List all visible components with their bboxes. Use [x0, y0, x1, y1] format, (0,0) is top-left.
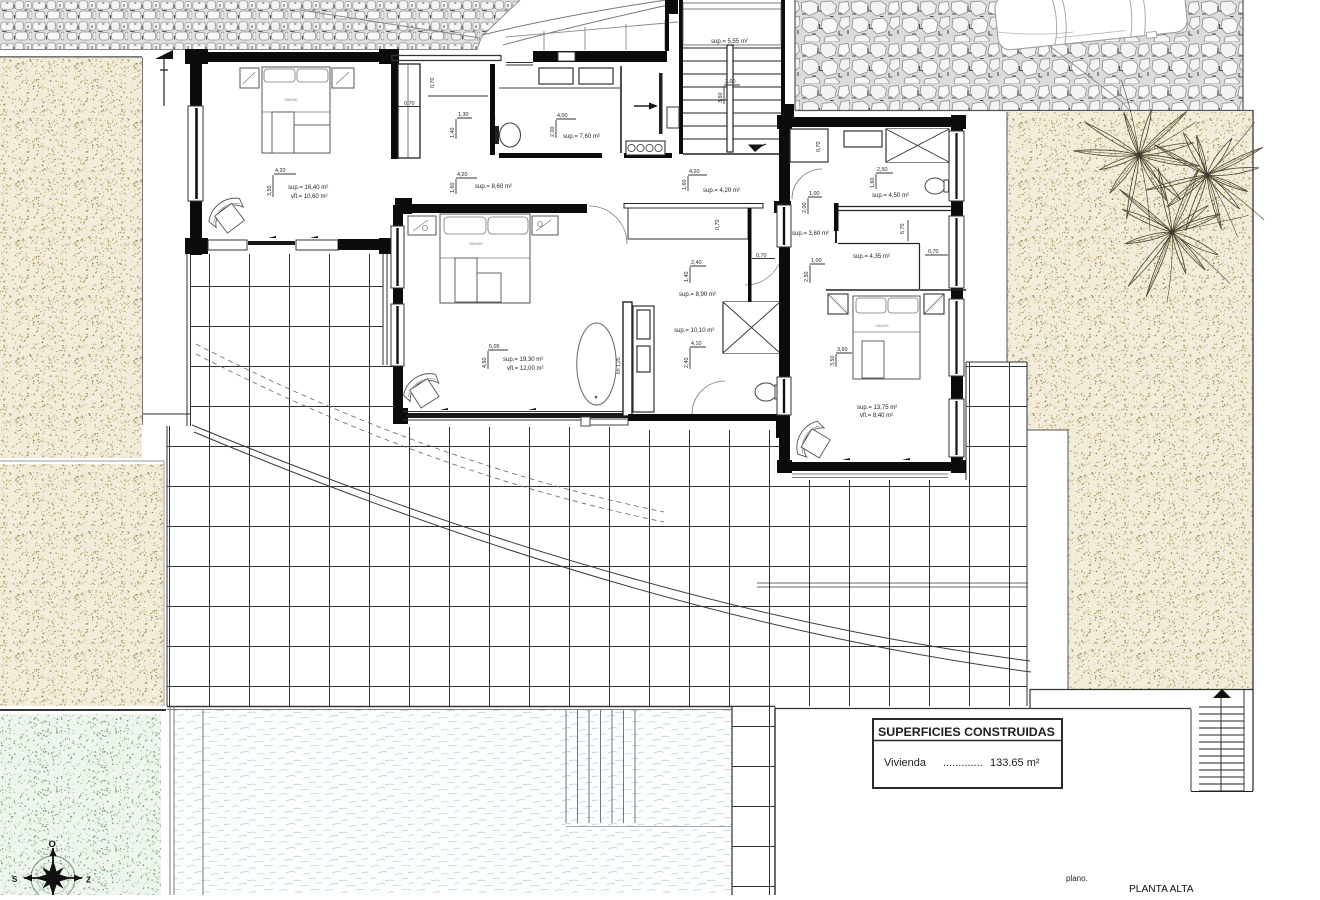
svg-text:2,50: 2,50	[877, 167, 888, 173]
svg-text:sup.= 16,40 m²: sup.= 16,40 m²	[288, 185, 328, 191]
svg-text:vfl.= 10,60 m²: vfl.= 10,60 m²	[291, 194, 328, 200]
svg-text:sup.= 4,50 m²: sup.= 4,50 m²	[872, 193, 909, 199]
svg-text:0,70: 0,70	[928, 249, 939, 255]
svg-text:sup.= 8,60 m²: sup.= 8,60 m²	[475, 184, 512, 190]
svg-text:133.65 m²: 133.65 m²	[990, 757, 1040, 769]
svg-text:vfl.= 8,40 m²: vfl.= 8,40 m²	[860, 413, 893, 419]
svg-text:3,60: 3,60	[837, 347, 848, 353]
svg-text:sup.= 13,75 m²: sup.= 13,75 m²	[857, 405, 897, 411]
svg-text:sup.= 19,30 m²: sup.= 19,30 m²	[503, 357, 543, 363]
svg-text:1,00: 1,00	[809, 191, 820, 197]
svg-text:.............: .............	[943, 757, 983, 769]
svg-text:1,30: 1,30	[458, 112, 469, 118]
svg-text:sup.= 5,55 m²: sup.= 5,55 m²	[711, 39, 748, 45]
svg-text:5,05: 5,05	[489, 344, 500, 350]
svg-text:2,00: 2,00	[802, 203, 808, 214]
svg-text:Z: Z	[86, 876, 91, 885]
svg-text:0,70: 0,70	[715, 220, 721, 231]
svg-text:tm 1,25: tm 1,25	[616, 357, 622, 374]
svg-text:1,00: 1,00	[811, 258, 822, 264]
svg-text:150x190: 150x190	[469, 242, 482, 246]
svg-text:2,40: 2,40	[691, 260, 702, 266]
svg-text:S: S	[12, 875, 18, 884]
svg-text:O: O	[49, 839, 56, 850]
svg-text:3,50: 3,50	[267, 186, 273, 197]
svg-text:1,60: 1,60	[450, 183, 456, 194]
svg-text:2,40: 2,40	[684, 358, 690, 369]
svg-text:4,20: 4,20	[275, 168, 286, 174]
svg-text:vfl.= 12,00 m²: vfl.= 12,00 m²	[507, 366, 544, 372]
svg-text:plano.: plano.	[1066, 874, 1088, 883]
svg-text:Vivienda: Vivienda	[884, 757, 927, 769]
svg-text:4,10: 4,10	[691, 341, 702, 347]
svg-text:sup.= 8,90 m²: sup.= 8,90 m²	[679, 292, 716, 298]
svg-text:4,50: 4,50	[482, 358, 488, 369]
svg-text:1,60: 1,60	[870, 178, 876, 189]
svg-text:4,00: 4,00	[557, 113, 568, 119]
svg-text:sup.= 3,60 m²: sup.= 3,60 m²	[792, 231, 829, 237]
svg-text:1,40: 1,40	[450, 128, 456, 139]
svg-text:1,60: 1,60	[682, 180, 688, 191]
svg-text:2,50: 2,50	[804, 272, 810, 283]
svg-text:SUPERFICIES CONSTRUIDAS: SUPERFICIES CONSTRUIDAS	[878, 725, 1055, 739]
svg-text:150x190: 150x190	[284, 98, 297, 102]
svg-text:PLANTA ALTA: PLANTA ALTA	[1129, 884, 1194, 895]
svg-text:6,70: 6,70	[900, 224, 906, 235]
svg-text:3,50: 3,50	[830, 356, 836, 367]
svg-text:sup.= 10,10 m²: sup.= 10,10 m²	[674, 328, 714, 334]
svg-text:140x190: 140x190	[875, 324, 888, 328]
svg-text:0,70: 0,70	[816, 142, 822, 153]
svg-text:0,70: 0,70	[430, 78, 436, 89]
svg-text:sup.= 7,60 m²: sup.= 7,60 m²	[563, 134, 600, 140]
svg-text:3,60: 3,60	[718, 93, 724, 104]
svg-text:4,20: 4,20	[457, 172, 468, 178]
svg-text:4,20: 4,20	[689, 169, 700, 175]
svg-text:sup.= 4,35 m²: sup.= 4,35 m²	[853, 254, 890, 260]
svg-text:2,00: 2,00	[550, 127, 556, 138]
svg-text:2,00: 2,00	[725, 79, 736, 85]
svg-text:1,40: 1,40	[684, 272, 690, 283]
svg-text:sup.= 4,20 m²: sup.= 4,20 m²	[703, 188, 740, 194]
